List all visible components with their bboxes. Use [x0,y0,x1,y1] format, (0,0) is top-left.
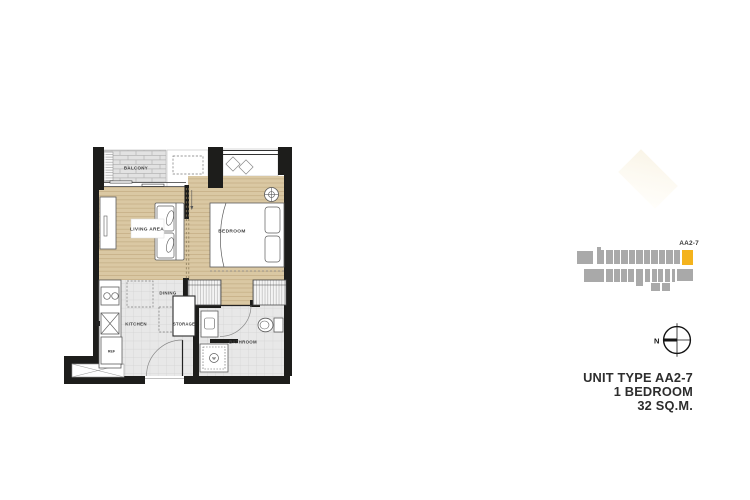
key-plan-block [651,250,658,264]
balcony-label: BALCONY [124,166,148,171]
key-plan-block [636,250,643,264]
floor-plan: BALCONY LIVING AREA BEDROOM DINING KITCH… [60,128,310,390]
key-plan-block [606,250,613,264]
key-plan-block [672,269,676,282]
unit-type-text: UNIT TYPE AA2-7 [583,371,693,385]
key-plan-block [659,250,666,264]
ref-label: REF [108,350,116,354]
key-plan-block [652,269,657,282]
key-plan: AA2-7 [575,243,695,293]
key-plan-block [662,283,670,291]
key-plan-block [645,269,651,282]
key-plan-block [621,250,628,264]
key-plan-block [584,269,604,282]
vanity-sink [201,311,218,337]
key-plan-block [636,269,643,286]
key-plan-block [658,269,663,282]
key-plan-block [577,251,593,264]
storage-label: STORAGE [173,322,195,327]
key-plan-block [628,269,634,282]
key-plan-block [651,283,660,291]
bed [210,203,284,271]
north-compass: N [650,317,700,363]
unit-info: UNIT TYPE AA2-7 1 BEDROOM 32 SQ.M. [583,371,693,414]
key-plan-block [665,269,671,282]
area-text: 32 SQ.M. [583,399,693,413]
key-plan-block [666,250,673,264]
bedroom-label: BEDROOM [218,229,246,235]
ceiling-fan-icon [265,188,279,202]
key-plan-block [614,250,621,264]
key-plan-block [674,250,681,264]
key-plan-block [677,269,693,281]
key-plan-block [597,250,604,264]
passage-floor [221,280,253,305]
north-pointer [664,339,677,342]
living-area-label: LIVING AREA [130,227,164,233]
key-plan-block [644,250,651,264]
sliding-door-leaf [185,185,190,219]
key-plan-unit-label: AA2-7 [679,240,699,247]
bedroom-ledge [223,149,278,176]
north-label: N [654,337,659,346]
key-plan-block [614,269,620,282]
key-plan-block [606,269,613,282]
ac-condenser [104,152,113,181]
stove [101,287,119,305]
key-plan-unit-highlight [682,250,693,265]
storage-room [173,296,195,336]
tv-cabinet [100,197,116,249]
kitchen-label: KITCHEN [125,322,147,327]
dining-label: DINING [159,291,176,296]
key-plan-block [621,269,628,282]
key-plan-block [629,250,636,264]
bathroom-label: BATHROOM [229,340,257,345]
brand-watermark [618,149,678,209]
toilet [258,318,283,332]
bedroom-count-text: 1 BEDROOM [583,385,693,399]
